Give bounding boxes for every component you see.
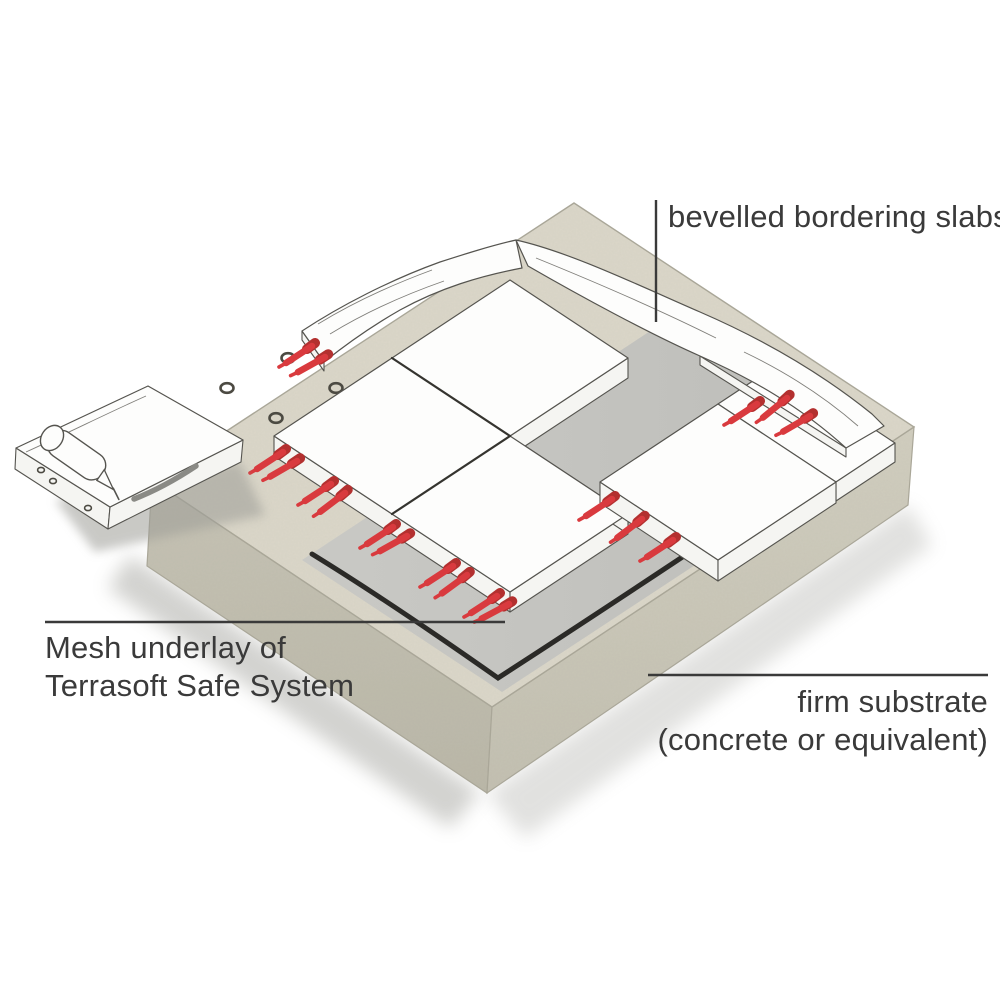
label-mesh-line1: Mesh underlay of: [45, 630, 286, 665]
label-bordering-slabs: bevelled bordering slabs: [668, 199, 1000, 234]
anchor-ring-icon: [221, 383, 234, 393]
label-substrate-line1: firm substrate: [797, 684, 988, 719]
installation-diagram: bevelled bordering slabs Mesh underlay o…: [0, 0, 1000, 1000]
diagram-stage: bevelled bordering slabs Mesh underlay o…: [0, 0, 1000, 1000]
label-mesh-line2: Terrasoft Safe System: [45, 668, 354, 703]
label-substrate-line2: (concrete or equivalent): [658, 722, 988, 757]
